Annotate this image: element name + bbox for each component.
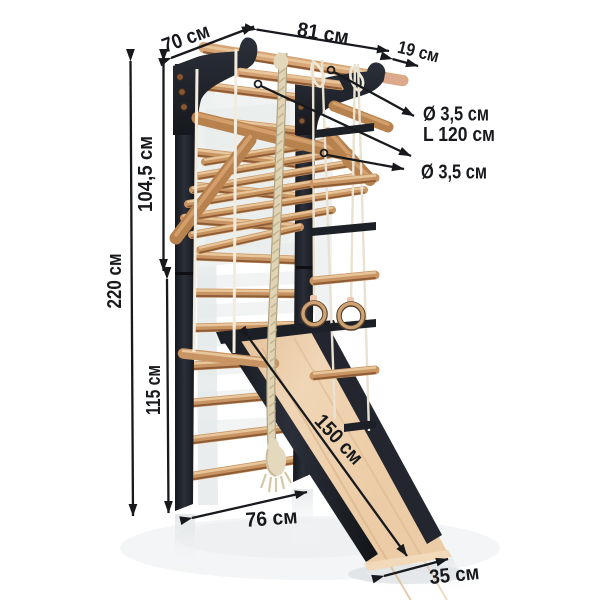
svg-text:220 см: 220 см (103, 254, 126, 309)
svg-text:76 см: 76 см (245, 505, 298, 532)
svg-text:104,5 см: 104,5 см (134, 136, 157, 212)
svg-text:115 см: 115 см (142, 365, 165, 415)
svg-text:Ø 3,5 см: Ø 3,5 см (421, 161, 487, 184)
svg-text:L 120 см: L 120 см (423, 123, 495, 146)
